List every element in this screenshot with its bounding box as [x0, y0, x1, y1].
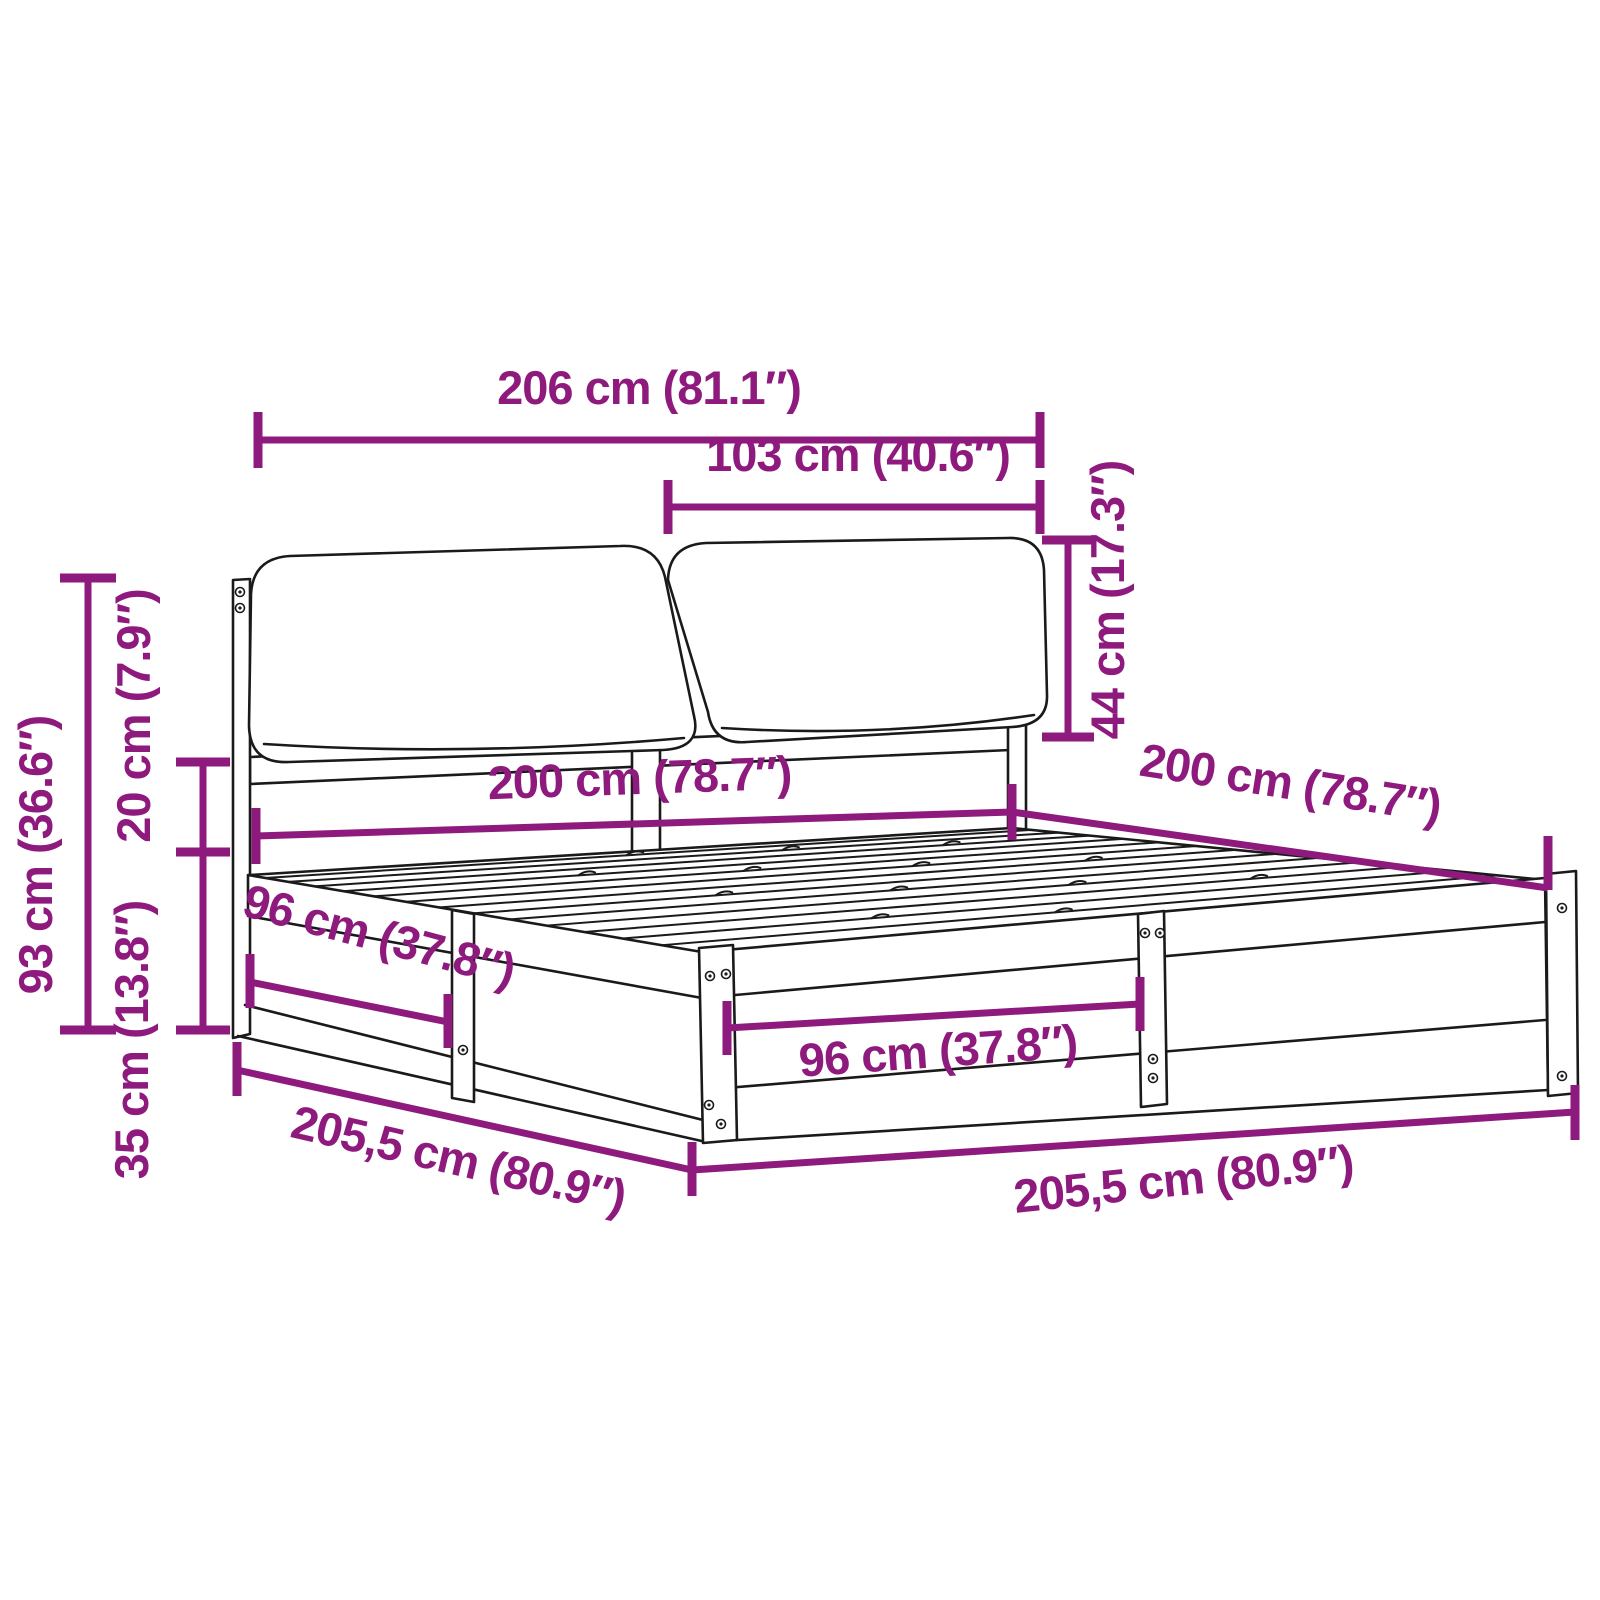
dim-gap-height-label: 20 cm (7.9″): [107, 589, 160, 842]
dim-inner-length-label: 200 cm (78.7″): [1136, 733, 1444, 833]
headboard-cushion-left: [249, 546, 695, 762]
dim-total-width-label: 206 cm (81.1″): [497, 361, 801, 414]
dim-gap-height: 20 cm (7.9″): [107, 589, 230, 852]
dim-base-height: 35 cm (13.8″): [105, 852, 230, 1179]
dim-cushion-height: 44 cm (17.3″): [1042, 461, 1134, 740]
dim-cushion-width: 103 cm (40.6″): [668, 428, 1040, 534]
dim-inner-width-label: 200 cm (78.7″): [487, 746, 792, 810]
dim-headboard-height-label: 93 cm (36.6″): [9, 716, 62, 995]
dim-headboard-height: 93 cm (36.6″): [9, 578, 116, 1030]
dim-base-height-label: 35 cm (13.8″): [105, 901, 158, 1180]
dim-cushion-height-label: 44 cm (17.3″): [1081, 461, 1134, 740]
dim-cushion-width-label: 103 cm (40.6″): [706, 428, 1010, 481]
dimension-diagram: 206 cm (81.1″) 103 cm (40.6″) 44 cm (17.…: [0, 0, 1600, 1600]
headboard-cushion-right: [668, 538, 1047, 742]
